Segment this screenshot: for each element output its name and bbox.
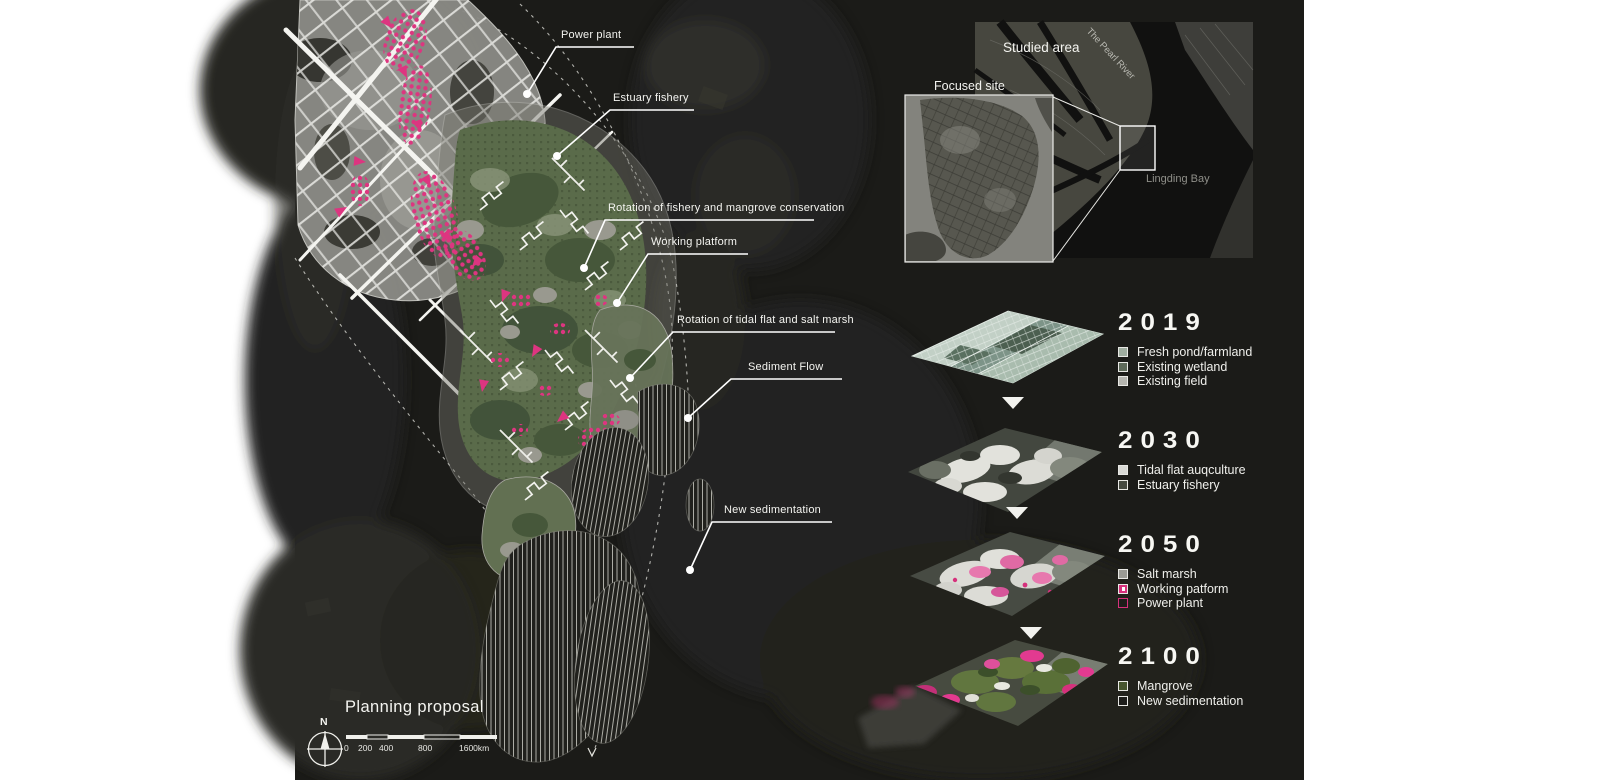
scale-label-400: 400 [379, 743, 393, 753]
callout-rotation-fishery: Rotation of fishery and mangrove conserv… [608, 202, 844, 214]
focused-site-label: Focused site [934, 79, 1005, 93]
swatch-existing-wetland [1118, 362, 1128, 372]
callout-new-sedimentation: New sedimentation [724, 504, 821, 516]
swatch-working-platform [1118, 584, 1128, 594]
locator-box [1120, 126, 1155, 170]
phase-2019-year: 2019 [1118, 308, 1252, 337]
map-title: Planning proposal [345, 698, 484, 717]
legend-item: Fresh pond/farmland [1118, 345, 1252, 359]
legend-item: Tidal flat auqculture [1118, 463, 1246, 477]
legend-item: Mangrove [1118, 679, 1243, 693]
callout-rotation-tidal: Rotation of tidal flat and salt marsh [677, 314, 854, 326]
swatch-tidal-flat-aquaculture [1118, 465, 1128, 475]
planning-proposal-poster: Power plant Estuary fishery Rotation of … [0, 0, 1600, 780]
legend-item: Salt marsh [1118, 567, 1228, 581]
legend-item: Existing wetland [1118, 359, 1252, 373]
swatch-fresh-pond [1118, 347, 1128, 357]
legend-item: Power plant [1118, 596, 1228, 610]
swatch-mangrove [1118, 681, 1128, 691]
phase-2100: 2100 Mangrove New sedimentation [1118, 642, 1243, 708]
swatch-existing-field [1118, 376, 1128, 386]
focused-site-inset [905, 95, 1053, 262]
swatch-new-sedimentation [1118, 696, 1128, 706]
swatch-power-plant [1118, 598, 1128, 608]
scale-label-800: 800 [418, 743, 432, 753]
phase-2100-year: 2100 [1118, 642, 1243, 671]
studied-area-label: Studied area [1003, 40, 1080, 55]
scale-label-1600: 1600km [459, 743, 489, 753]
scale-label-200: 200 [358, 743, 372, 753]
compass-north-label: N [320, 716, 328, 728]
lingding-bay-label: Lingding Bay [1146, 173, 1210, 185]
phase-2030-year: 2030 [1118, 426, 1246, 455]
swatch-salt-marsh [1118, 569, 1128, 579]
legend-item: New sedimentation [1118, 693, 1243, 707]
scale-label-0: 0 [344, 743, 349, 753]
legend-item: Existing field [1118, 374, 1252, 388]
phase-2050-year: 2050 [1118, 530, 1228, 559]
legend-item: Estuary fishery [1118, 477, 1246, 491]
swatch-estuary-fishery [1118, 480, 1128, 490]
phase-2019: 2019 Fresh pond/farmland Existing wetlan… [1118, 308, 1252, 388]
map-artwork [0, 0, 1600, 780]
phase-2050: 2050 Salt marsh Working patform Power pl… [1118, 530, 1228, 610]
callout-sediment-flow: Sediment Flow [748, 361, 823, 373]
phase-2030: 2030 Tidal flat auqculture Estuary fishe… [1118, 426, 1246, 492]
callout-working-platform: Working platform [651, 236, 737, 248]
callout-estuary-fishery: Estuary fishery [613, 92, 689, 104]
legend-item: Working patform [1118, 581, 1228, 595]
callout-power-plant: Power plant [561, 29, 621, 41]
